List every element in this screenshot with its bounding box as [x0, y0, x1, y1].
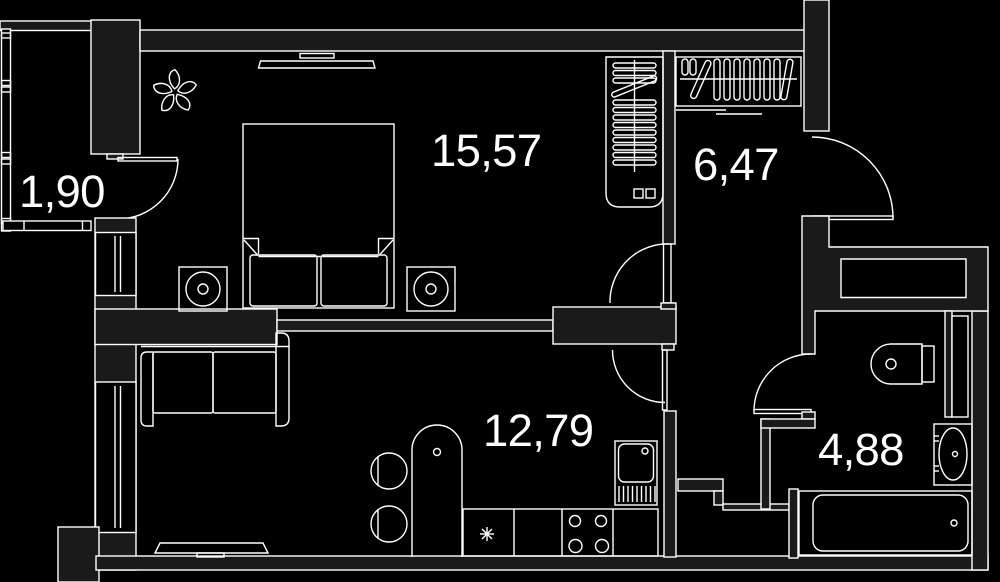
svg-text:4,88: 4,88 [818, 424, 904, 475]
svg-text:6,47: 6,47 [693, 139, 779, 190]
svg-text:1,90: 1,90 [19, 166, 105, 217]
svg-text:15,57: 15,57 [431, 125, 541, 176]
svg-text:12,79: 12,79 [483, 405, 593, 456]
